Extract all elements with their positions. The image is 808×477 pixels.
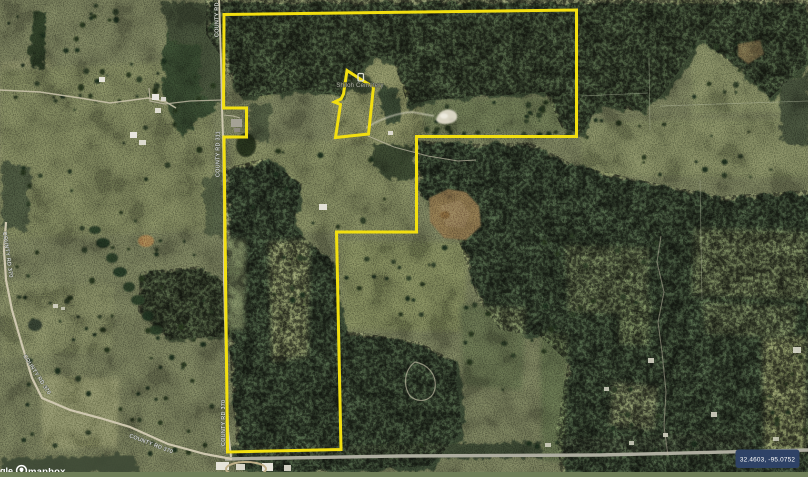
svg-text:COUNTY RD 311: COUNTY RD 311: [215, 0, 221, 37]
svg-text:gle: gle: [0, 466, 13, 472]
svg-text:COUNTY RD 311: COUNTY RD 311: [216, 131, 222, 177]
svg-text:mapbox: mapbox: [28, 467, 66, 473]
svg-text:Shiloh Cemetery: Shiloh Cemetery: [336, 83, 383, 89]
svg-text:COUNTY RD 370: COUNTY RD 370: [221, 400, 227, 446]
svg-text:32.4603, -95.0752: 32.4603, -95.0752: [740, 457, 796, 464]
